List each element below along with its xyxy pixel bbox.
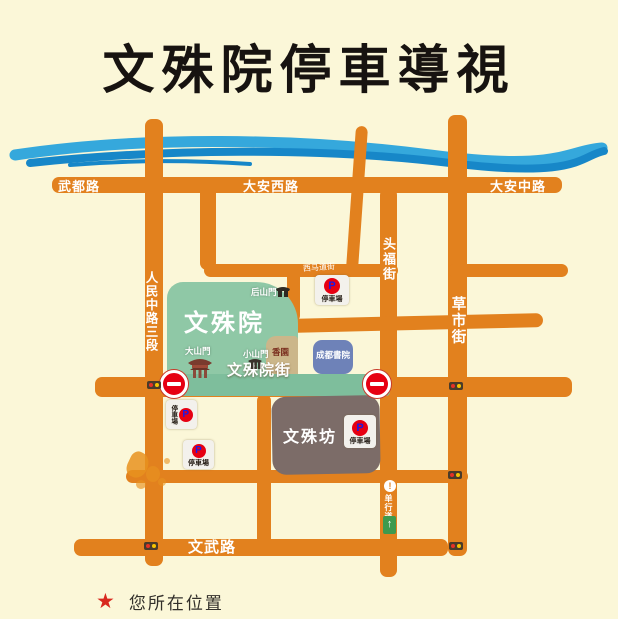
dashanmen-gate-icon (186, 356, 214, 378)
traffic-light-icon (144, 542, 158, 550)
no-entry-bar (370, 382, 384, 386)
road-ximadaojie-east (448, 264, 568, 277)
warning-exclaim-icon: ! (384, 480, 396, 492)
road-label-caoshijie: 草市街 (450, 296, 465, 346)
parking-sign-north: P 停車場 (315, 275, 349, 305)
parking-sign-wenshufang: P 停車場 (344, 415, 376, 448)
parking-sign-label: 停車場 (350, 437, 371, 444)
road-middle-east (290, 313, 543, 333)
traffic-light-icon (147, 381, 161, 389)
legend-label: 您所在位置 (129, 589, 224, 614)
label-dashanmen: 大山門 (185, 347, 211, 356)
label-wenshuyuan: 文殊院 (184, 311, 265, 335)
road-vertical-2 (200, 186, 216, 270)
parking-p-icon: P (192, 444, 206, 458)
parking-p-icon: P (179, 408, 193, 422)
road-label-wenwulu: 文武路 (188, 540, 236, 555)
parking-sign-west-upper: 停車場 P (166, 400, 197, 429)
paint-splatter (164, 458, 170, 464)
parking-sign-label: 停車場 (188, 459, 209, 466)
label-xiangyuan: 香園 (272, 348, 289, 357)
road-label-daanzhonglu: 大安中路 (490, 180, 546, 193)
paint-splatter (136, 480, 146, 489)
no-entry-icon (160, 370, 188, 398)
no-entry-bar (167, 382, 181, 386)
road-label-toufujie: 头福街 (382, 237, 395, 282)
parking-sign-label: 停車場 (170, 405, 177, 425)
road-daan-road (52, 177, 562, 193)
traffic-light-icon (449, 382, 463, 390)
label-houshanmen: 后山門 (251, 288, 277, 297)
road-label-daanxilu: 大安西路 (243, 180, 299, 193)
parking-p-icon: P (324, 278, 340, 294)
legend: ★ 您所在位置 (96, 589, 224, 614)
label-wenshufang: 文殊坊 (283, 429, 337, 445)
road-label-renminzhonglu: 人民中路三段 (144, 271, 157, 352)
parking-p-icon: P (352, 420, 368, 436)
your-location-star-icon: ★ (96, 591, 115, 612)
no-entry-icon (363, 370, 391, 398)
road-ximadaojie (204, 264, 398, 277)
page-title: 文殊院停車導視 (0, 28, 618, 103)
paint-splatter (158, 478, 166, 486)
houshanmen-gate-icon (276, 285, 290, 298)
parking-guide-map: 文殊院停車導視 武都路 大安西路 大安中路 人民中路三段 西马道街 头福街 草市… (0, 0, 618, 619)
traffic-light-icon (448, 471, 462, 479)
road-label-wudulu: 武都路 (58, 180, 100, 193)
xiaoshanmen-gate-icon (247, 357, 263, 369)
one-way-arrow-icon: ↑ (383, 516, 396, 534)
parking-sign-west-lower: P 停車場 (183, 440, 214, 469)
road-wenwulu (74, 539, 448, 556)
parking-sign-label: 停車場 (322, 295, 343, 302)
label-chengdushuyuan: 成都書院 (316, 352, 350, 361)
traffic-light-icon (449, 542, 463, 550)
